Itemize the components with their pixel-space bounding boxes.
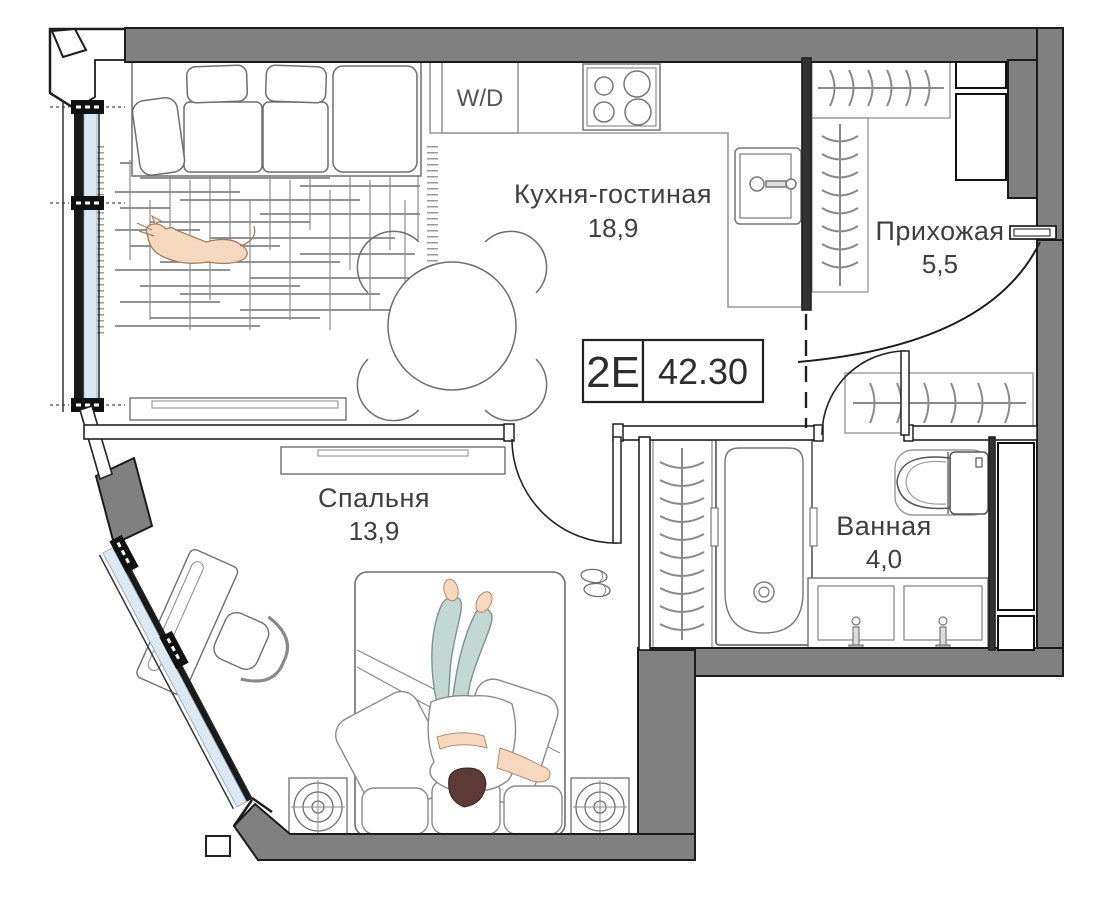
dining-table-icon: [388, 262, 516, 390]
room-label-bathroom: Ванная: [836, 511, 931, 541]
room-label-kitchen: Кухня-гостиная: [514, 179, 712, 209]
dining-set: [343, 217, 562, 436]
tv-console: [130, 398, 346, 420]
cat-icon: [137, 216, 255, 263]
unit-code: 2Е: [586, 348, 640, 397]
window-mullion: [50, 100, 125, 114]
slippers-icon: [580, 568, 610, 597]
bathroom-vanity: [808, 578, 988, 651]
room-area-bedroom: 13,9: [349, 516, 400, 546]
window: [50, 100, 125, 412]
unit-badge: 2Е 42.30: [583, 340, 763, 402]
balcony-notch: [50, 29, 125, 110]
bedroom-dresser: [281, 447, 505, 474]
hallway-closet-lower: [845, 373, 1033, 433]
room-area-bathroom: 4,0: [866, 544, 902, 574]
door-leaf: [613, 437, 621, 543]
room-area-hallway: 5,5: [922, 249, 958, 279]
window-mullion: [50, 196, 125, 210]
room-label-hallway: Прихожая: [875, 216, 1004, 246]
toilet-icon: [895, 450, 990, 515]
sofa: [131, 62, 421, 177]
bedroom-door: [512, 437, 621, 543]
room-label-bedroom: Спальня: [318, 483, 430, 513]
nightstand: [571, 778, 629, 836]
bathtub-icon: [711, 437, 817, 645]
unit-total-area: 42.30: [658, 351, 748, 392]
kitchen-sink-icon: [735, 148, 801, 224]
door-leaf: [1014, 229, 1050, 236]
nightstand: [289, 778, 347, 836]
stove-icon: [583, 64, 660, 130]
floor-plan: W/D: [0, 0, 1109, 901]
wall-segment: [80, 406, 112, 479]
bed: [329, 572, 565, 836]
washer-dryer-label: W/D: [457, 85, 504, 112]
door-leaf: [901, 351, 909, 435]
bathroom-wardrobe: [653, 440, 712, 648]
room-area-kitchen: 18,9: [588, 213, 639, 243]
